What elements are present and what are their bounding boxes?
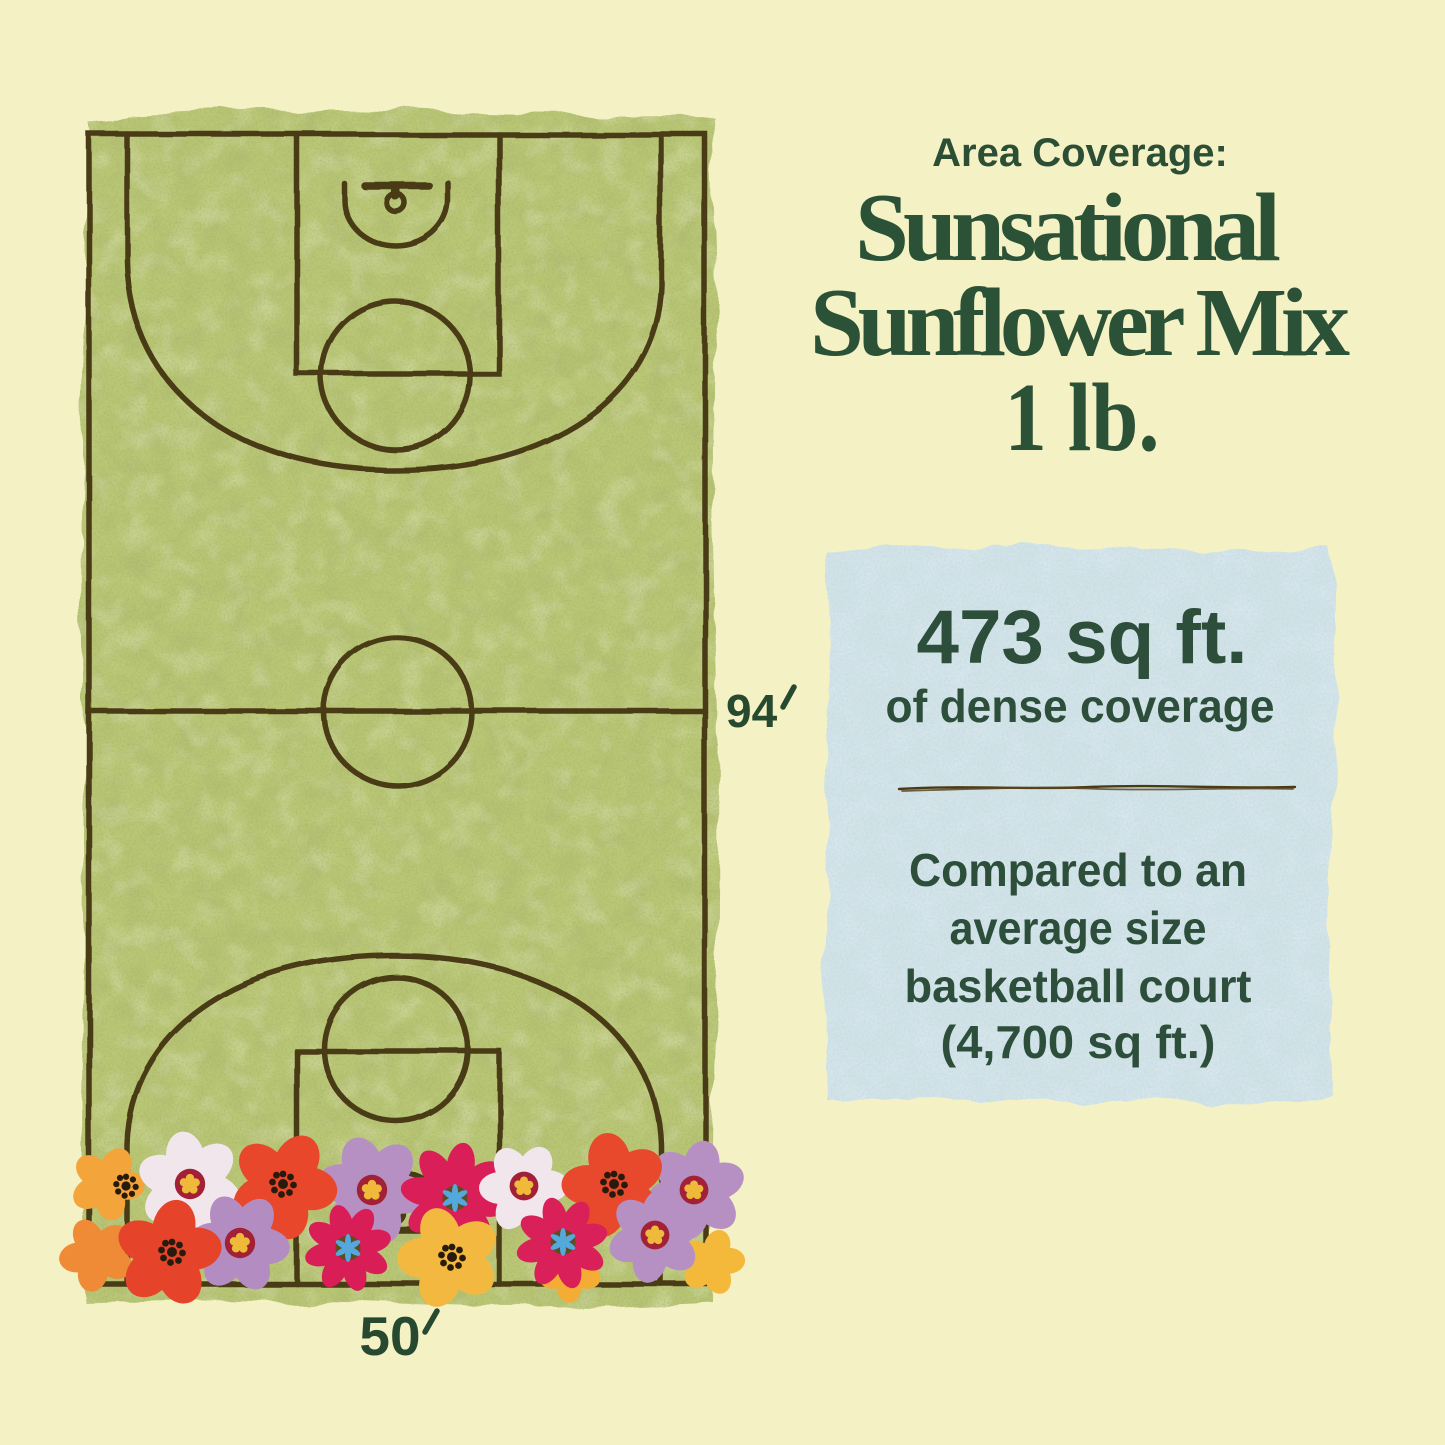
svg-text:50: 50 [359, 1305, 420, 1367]
svg-text:basketball court: basketball court [905, 960, 1252, 1012]
svg-text:Sunsational: Sunsational [855, 174, 1281, 281]
svg-text:Area Coverage:: Area Coverage: [932, 131, 1228, 175]
svg-text:Compared to an: Compared to an [909, 844, 1247, 896]
svg-text:of dense coverage: of dense coverage [886, 680, 1275, 732]
svg-text:94: 94 [726, 685, 778, 737]
svg-text:Sunflower Mix: Sunflower Mix [810, 269, 1350, 376]
svg-text:(4,700 sq ft.): (4,700 sq ft.) [941, 1016, 1216, 1068]
svg-text:473 sq ft.: 473 sq ft. [917, 595, 1248, 680]
svg-text:1 lb.: 1 lb. [1005, 364, 1160, 471]
svg-text:average size: average size [950, 902, 1207, 954]
